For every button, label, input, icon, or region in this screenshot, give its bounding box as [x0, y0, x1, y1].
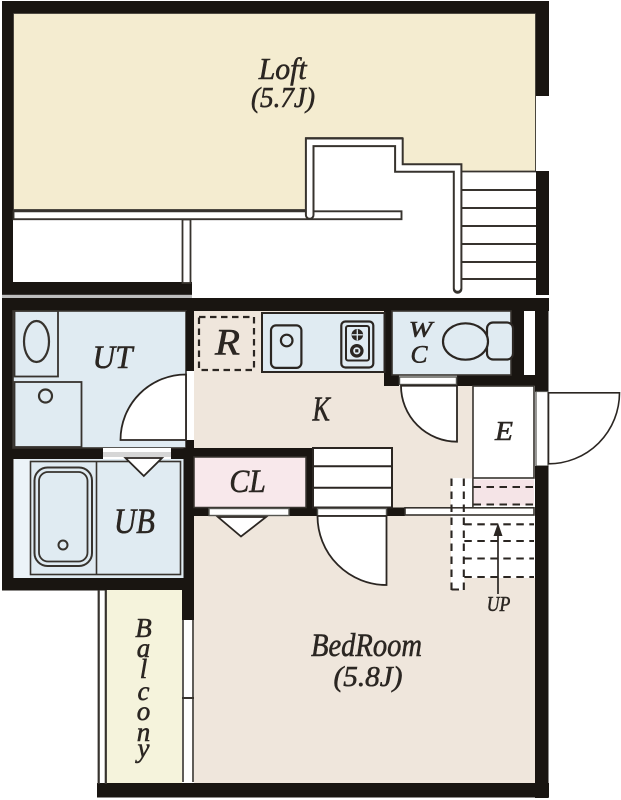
- svg-text:UP: UP: [487, 592, 511, 616]
- svg-text:C: C: [411, 341, 428, 368]
- svg-text:UB: UB: [114, 501, 155, 541]
- svg-text:R: R: [214, 323, 240, 364]
- svg-text:y: y: [135, 733, 150, 763]
- svg-text:K: K: [312, 390, 331, 429]
- svg-text:W: W: [409, 317, 435, 342]
- svg-text:Loft: Loft: [258, 51, 308, 86]
- svg-text:CL: CL: [229, 464, 266, 500]
- svg-text:BedRoom: BedRoom: [311, 628, 422, 664]
- svg-text:(5.7J): (5.7J): [251, 83, 315, 114]
- svg-text:(5.8J): (5.8J): [334, 662, 403, 693]
- svg-text:UT: UT: [93, 340, 136, 376]
- svg-text:E: E: [494, 416, 514, 446]
